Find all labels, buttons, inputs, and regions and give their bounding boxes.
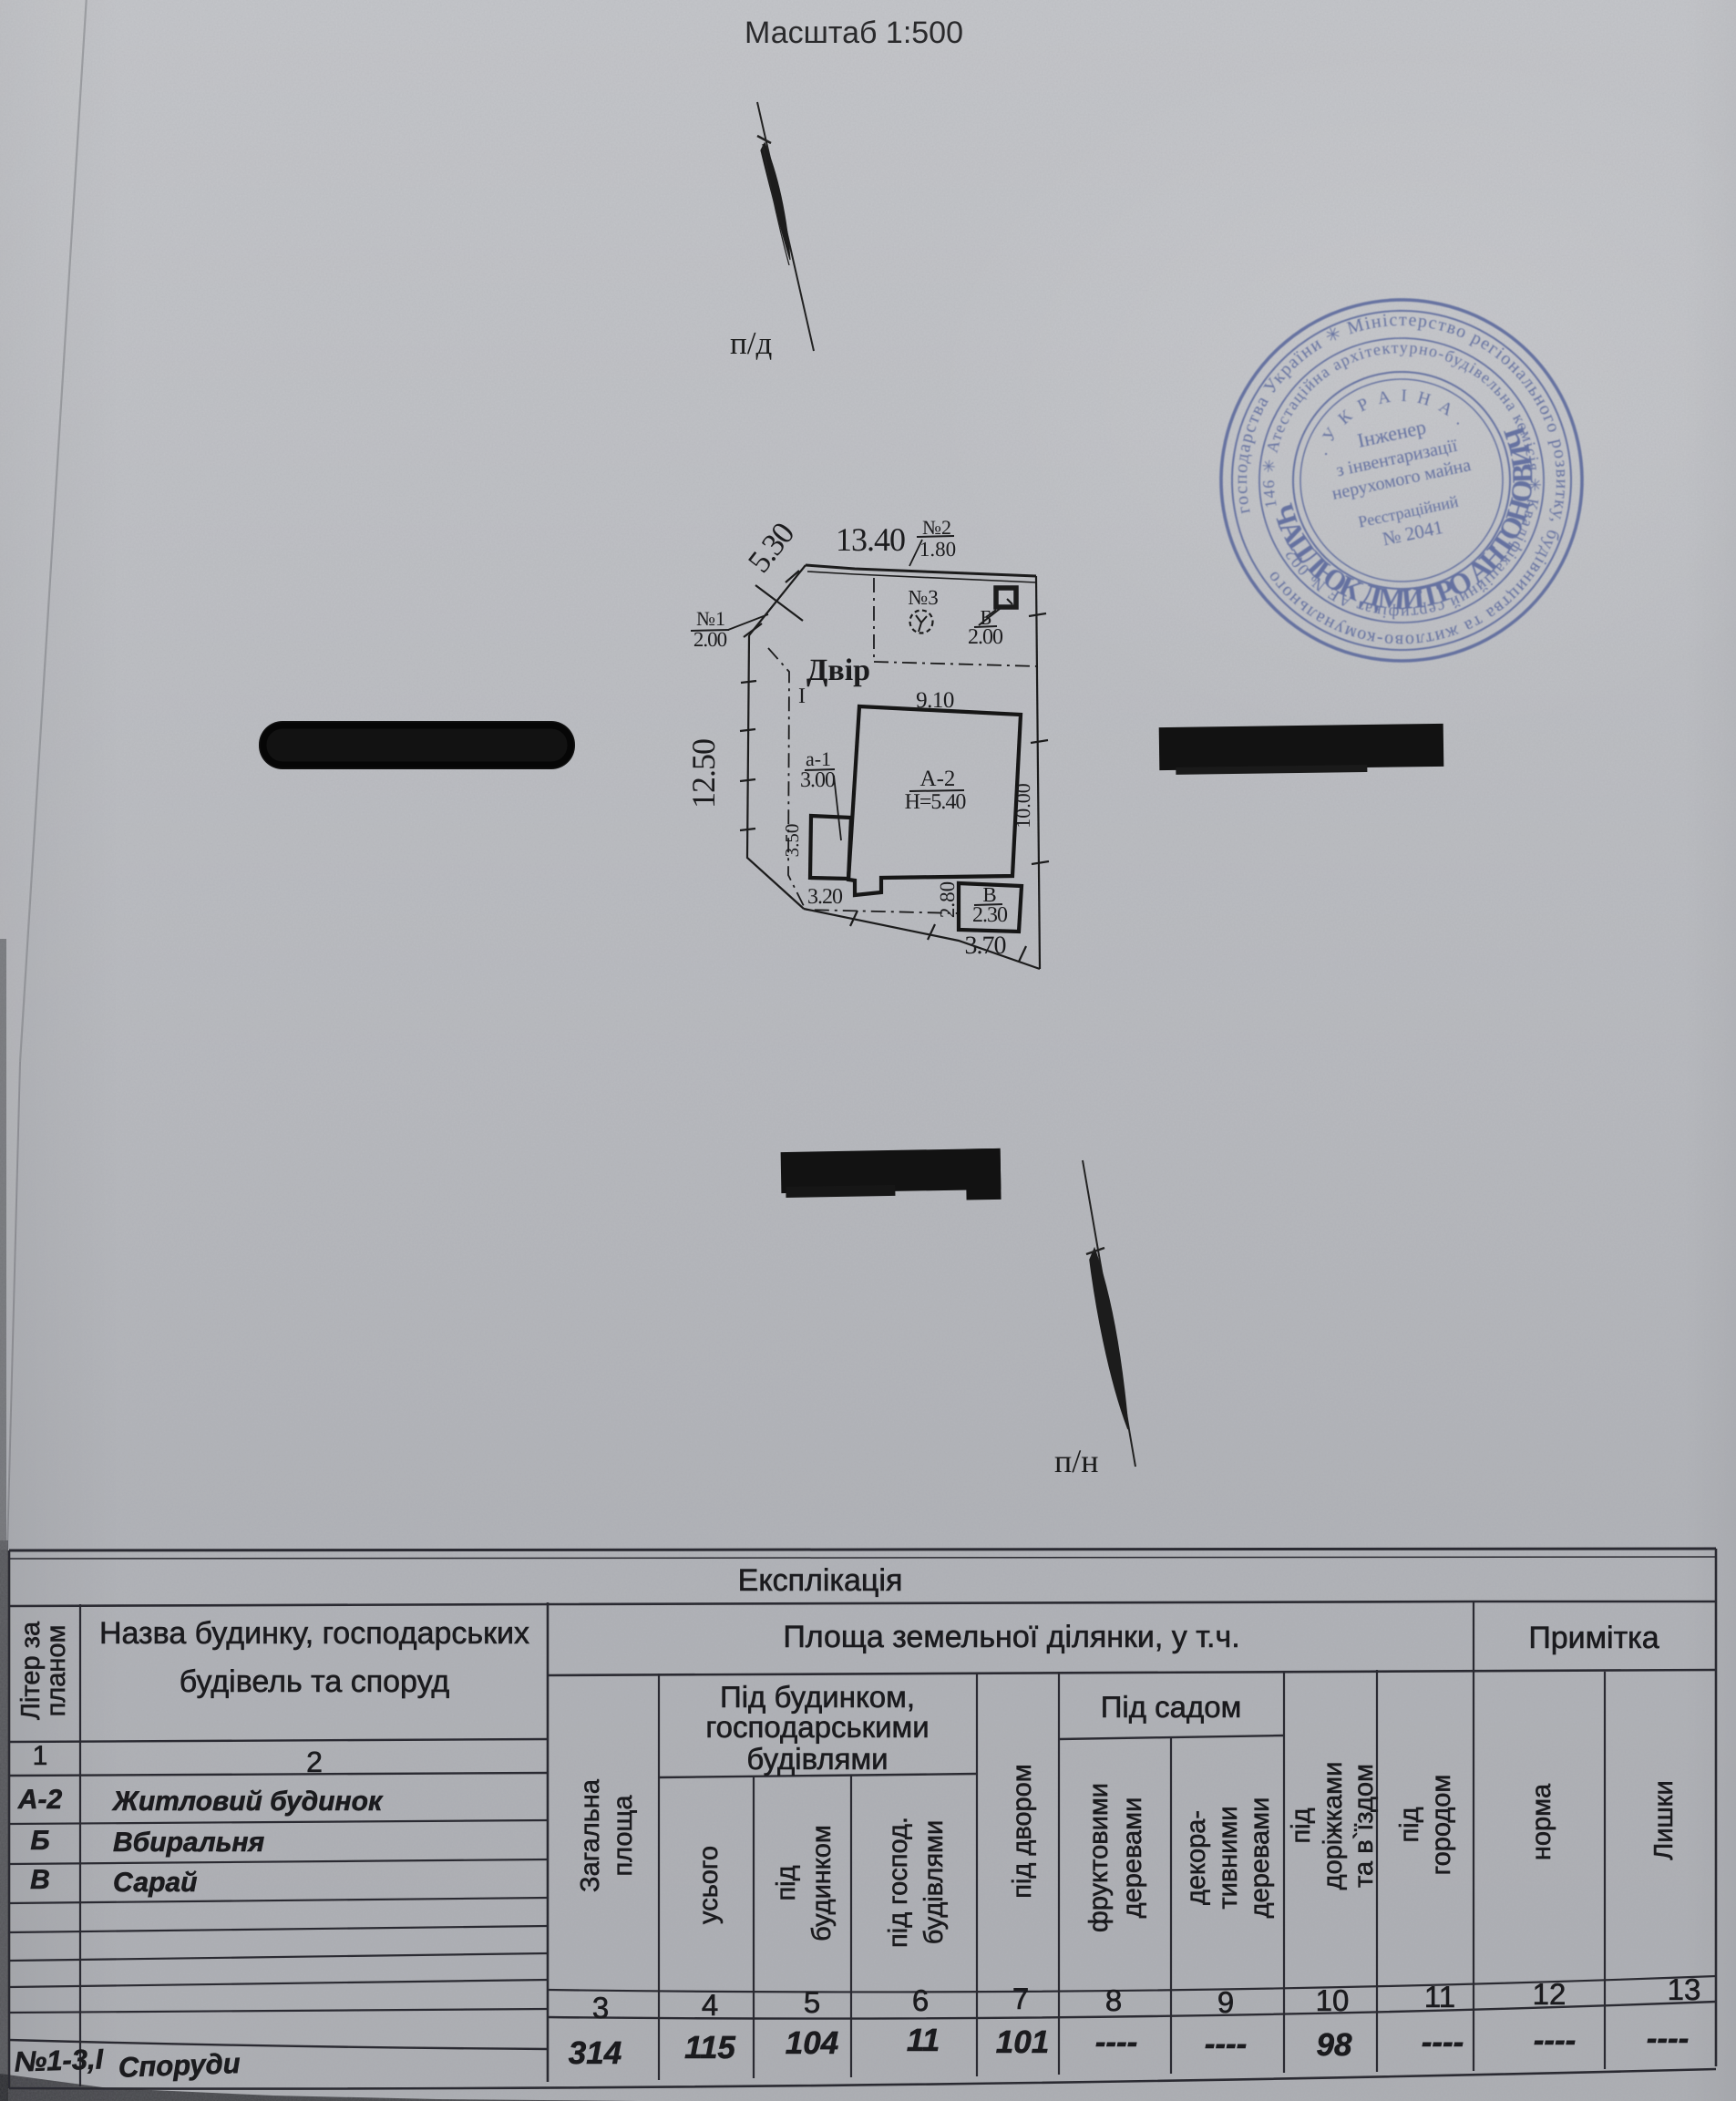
- svg-text:Примітка: Примітка: [1528, 1621, 1659, 1655]
- svg-text:та в`їздом: та в`їздом: [1350, 1764, 1379, 1888]
- svg-text:----: ----: [1422, 2024, 1464, 2060]
- svg-text:314: 314: [569, 2035, 621, 2071]
- svg-text:деревами: деревами: [1118, 1797, 1147, 1919]
- svg-text:декора-: декора-: [1182, 1810, 1211, 1905]
- svg-text:під господ.: під господ.: [884, 1817, 913, 1948]
- svg-text:Двір: Двір: [806, 654, 870, 687]
- svg-text:13.40: 13.40: [836, 521, 905, 558]
- svg-text:104: 104: [786, 2025, 838, 2061]
- svg-text:2.30: 2.30: [972, 903, 1008, 927]
- svg-text:3: 3: [592, 1991, 609, 2024]
- svg-text:під: під: [772, 1865, 801, 1900]
- svg-text:----: ----: [1534, 2023, 1577, 2058]
- svg-text:під: під: [1287, 1807, 1316, 1843]
- svg-text:10.00: 10.00: [1012, 783, 1034, 829]
- svg-text:Загальна: Загальна: [576, 1778, 605, 1892]
- svg-text:Лишки: Лишки: [1649, 1780, 1679, 1859]
- svg-text:Експлікація: Експлікація: [738, 1563, 903, 1598]
- svg-text:3.70: 3.70: [965, 932, 1006, 960]
- svg-text:№3: №3: [908, 586, 938, 609]
- svg-text:планом: планом: [42, 1625, 71, 1717]
- svg-text:12.50: 12.50: [685, 739, 722, 808]
- svg-text:3.50: 3.50: [781, 824, 803, 858]
- svg-text:№1-3,І: №1-3,І: [14, 2043, 105, 2077]
- svg-text:тивними: тивними: [1214, 1806, 1243, 1909]
- svg-text:Площа земельної ділянки, у т.ч: Площа земельної ділянки, у т.ч.: [783, 1620, 1239, 1654]
- svg-text:усього: усього: [694, 1846, 724, 1924]
- svg-text:----: ----: [1095, 2024, 1138, 2060]
- svg-text:п/д: п/д: [730, 325, 772, 361]
- svg-text:11: 11: [1424, 1980, 1455, 2013]
- svg-text:6: 6: [912, 1983, 929, 2017]
- svg-text:норма: норма: [1527, 1783, 1556, 1860]
- svg-text:Б: Б: [30, 1826, 49, 1856]
- svg-text:Сарай: Сарай: [113, 1868, 197, 1898]
- svg-text:8: 8: [1105, 1983, 1122, 2017]
- svg-text:господарськими: господарськими: [705, 1710, 929, 1744]
- svg-text:9: 9: [1217, 1985, 1234, 2019]
- svg-text:В: В: [30, 1865, 50, 1895]
- svg-text:1: 1: [33, 1741, 48, 1771]
- svg-text:будівель та споруд: будівель та споруд: [180, 1664, 450, 1699]
- svg-text:Під садом: Під садом: [1101, 1690, 1242, 1724]
- svg-text:деревами: деревами: [1246, 1797, 1275, 1919]
- svg-text:Н=5.40: Н=5.40: [905, 790, 967, 814]
- svg-text:Назва будинку, господарських: Назва будинку, господарських: [99, 1616, 529, 1651]
- svg-text:площа: площа: [609, 1795, 638, 1877]
- svg-text:під: під: [1395, 1807, 1424, 1842]
- svg-text:Житловий будинок: Житловий будинок: [111, 1787, 384, 1817]
- svg-text:а-1: а-1: [806, 747, 831, 770]
- svg-text:А-2: А-2: [17, 1785, 63, 1815]
- svg-text:будівлями: будівлями: [746, 1742, 888, 1776]
- svg-text:4: 4: [702, 1988, 718, 2022]
- svg-text:3.20: 3.20: [807, 885, 843, 909]
- svg-text:Масштаб 1:500: Масштаб 1:500: [745, 15, 963, 50]
- svg-text:2: 2: [306, 1746, 323, 1778]
- svg-text:будинком: будинком: [807, 1825, 837, 1941]
- svg-text:А-2: А-2: [920, 767, 956, 791]
- svg-text:3.00: 3.00: [800, 768, 836, 792]
- svg-text:2.80: 2.80: [936, 881, 959, 918]
- svg-text:1.80: 1.80: [919, 538, 956, 561]
- svg-text:13: 13: [1668, 1972, 1701, 2006]
- svg-text:----: ----: [1647, 2021, 1690, 2056]
- svg-text:під двором: під двором: [1008, 1764, 1037, 1898]
- svg-text:98: 98: [1317, 2027, 1352, 2063]
- svg-text:----: ----: [1205, 2026, 1248, 2062]
- svg-text:10: 10: [1316, 1983, 1350, 2017]
- svg-text:фруктовими: фруктовими: [1084, 1783, 1114, 1932]
- svg-text:101: 101: [996, 2024, 1049, 2060]
- svg-text:п/н: п/н: [1054, 1443, 1099, 1479]
- svg-text:будівлями: будівлями: [919, 1820, 949, 1944]
- svg-text:115: 115: [684, 2030, 735, 2065]
- svg-text:I: I: [798, 685, 806, 708]
- svg-text:Вбиральня: Вбиральня: [113, 1828, 265, 1858]
- svg-text:№1: №1: [696, 607, 725, 630]
- svg-text:12: 12: [1533, 1977, 1567, 2011]
- svg-text:Споруди: Споруди: [118, 2047, 241, 2084]
- svg-text:11: 11: [907, 2023, 940, 2058]
- svg-text:Під будинком,: Під будинком,: [720, 1680, 915, 1714]
- svg-text:5: 5: [804, 1985, 820, 2019]
- svg-text:доріжками: доріжками: [1319, 1762, 1348, 1890]
- svg-text:7: 7: [1012, 1982, 1029, 2015]
- svg-text:9.10: 9.10: [916, 688, 954, 713]
- svg-text:городом: городом: [1427, 1775, 1456, 1876]
- svg-text:2.00: 2.00: [968, 625, 1003, 649]
